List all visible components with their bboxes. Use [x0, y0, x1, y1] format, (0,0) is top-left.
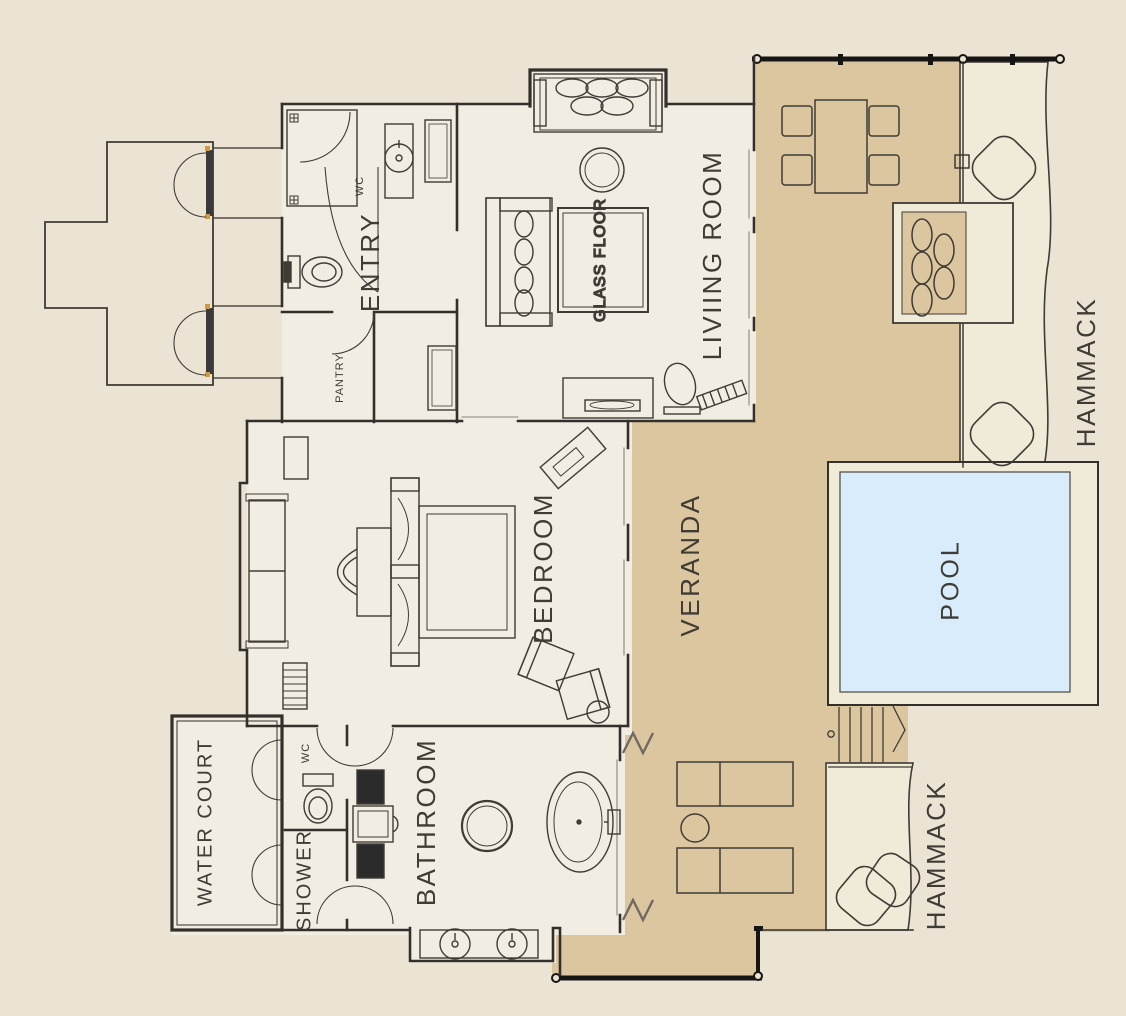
- entry-label: ENTRY: [355, 212, 385, 312]
- pool-area: POOL: [828, 462, 1098, 705]
- wc-bath-label: WC: [300, 743, 312, 763]
- entry-door-leaf: [206, 150, 213, 216]
- pool-label: POOL: [937, 539, 965, 620]
- glass-floor-label: GLASS FLOOR: [592, 198, 609, 322]
- daybed-icon: [893, 203, 1013, 323]
- pantry-label: PANTRY: [334, 353, 346, 403]
- shower-label: SHOWER: [293, 829, 315, 931]
- veranda-label: VERANDA: [675, 493, 705, 636]
- floor-plan: POOL: [0, 0, 1126, 1016]
- bedroom-label: BEDROOM: [528, 492, 558, 644]
- hammack-bottom-label: HAMMACK: [921, 780, 951, 930]
- living-room-label: LIVIING ROOM: [697, 150, 727, 361]
- entry-door-leaf: [206, 308, 213, 374]
- floor-plan-page: POOL: [0, 0, 1126, 1016]
- wc-entry-label: WC: [354, 176, 366, 196]
- water-court-label: WATER COURT: [194, 738, 216, 906]
- bathroom-label: BATHROOM: [411, 738, 441, 906]
- hammack-right-label: HAMMACK: [1071, 297, 1101, 447]
